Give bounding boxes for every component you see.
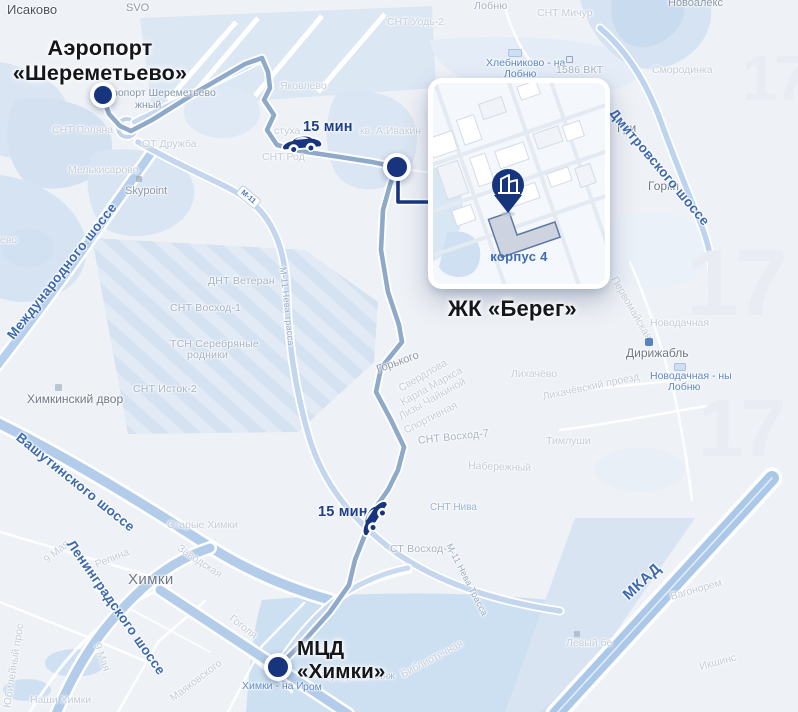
map-label-lobnya: Лобню <box>474 1 507 13</box>
khlebnikovo-station-badge <box>508 49 522 57</box>
inset-building-label: корпус 4 <box>433 249 605 264</box>
bereg-title: ЖК «Берег» <box>448 297 577 322</box>
map-label-airport-poi: ропорт Шереметьево <box>112 88 216 100</box>
building-pin-icon[interactable] <box>492 169 524 213</box>
map-label-snt-michur: СНТ Мичур <box>537 8 593 20</box>
airport-title: Аэропорт «Шереметьево» <box>0 36 200 86</box>
mcd-title-line2: «Химки» <box>297 660 386 683</box>
levy-bereg-poi-icon <box>574 631 580 637</box>
airport-title-line2: «Шереметьево» <box>0 61 200 86</box>
map-label-snt-uod: СНТ Уодь-2 <box>387 17 444 29</box>
khimkinsky-dvor-poi-icon <box>55 384 62 391</box>
map-label-likhachevo: Лихачёво <box>511 369 557 381</box>
watermark-17: 17 <box>742 46 798 110</box>
map-label-evo: ево <box>0 235 17 247</box>
map-label-melkisarovo: Мелькисарово <box>68 165 138 177</box>
map-label-dnt-veteran: ДНТ Ветеран <box>208 276 275 288</box>
map-label-novoaleks: Новоалекс <box>668 0 723 9</box>
map-label-novodachnaya-st-2: Лобню <box>668 382 700 394</box>
inset-map: корпус 4 <box>433 83 605 284</box>
skypoint-poi-icon <box>136 176 142 182</box>
watermark-17: 17 <box>698 388 783 470</box>
map-label-khimki-city: Химки <box>128 572 174 589</box>
inset-map-card[interactable]: корпус 4 <box>428 78 610 289</box>
map-label-nashi-khimki: Наши Химки <box>30 695 91 707</box>
map-label-snt-polyana: СНТ Поляна <box>52 125 113 137</box>
map-label-isakovo: Исаково <box>7 3 57 18</box>
map-label-snt-istok2: СНТ Исток-2 <box>133 384 197 396</box>
watermark-17: 17 <box>686 236 785 330</box>
map-label-smorodinka: Смородинка <box>652 65 713 77</box>
airport-title-line1: Аэропорт <box>0 36 200 61</box>
map-label-khimkinsky-dvor: Химкинский двор <box>27 393 123 406</box>
map-label-naberezhny: Набережный <box>468 461 531 475</box>
dirizhabl-poi-icon <box>645 338 653 346</box>
mcd-khimki-title: МЦД «Химки» <box>297 637 386 683</box>
map-label-ot-druzhba: ОТ Дружба <box>142 139 196 151</box>
map-label-skypoint: Skypoint <box>125 185 167 197</box>
car-icon <box>278 129 326 162</box>
map-label-kv-ivakin: кв. А.Ивакин <box>360 126 421 138</box>
map-label-snt-niva: СНТ Нива <box>430 502 477 513</box>
mcd-title-line1: МЦД <box>297 637 386 660</box>
map-label-svo: SVO <box>126 2 149 14</box>
khimki-route-marker[interactable] <box>264 653 292 681</box>
map-label-yakovlevo: Яковлево <box>280 81 327 93</box>
novodachnaya-station-badge <box>674 363 686 371</box>
map-label-levy-bereg: Левый бе <box>566 638 612 650</box>
map-canvas[interactable]: 17 17 17 Исаково SVO Лобню СНТ Мичур Нов… <box>0 0 798 712</box>
map-label-tsn-2: родники <box>187 350 228 362</box>
map-label-snt-voskhod1: СНТ Восход-1 <box>170 303 241 315</box>
map-label-airport-poi-2: жный <box>135 100 161 112</box>
vkt-poi-icon <box>566 56 573 63</box>
map-label-starye-khimki: Старые Химки <box>167 520 238 532</box>
map-label-dirizhabl: Дирижабль <box>626 347 689 360</box>
map-label-khimki-station-2: ром <box>303 682 322 694</box>
map-label-vkt: 1586 ВКТ <box>556 65 603 77</box>
map-label-novodachnaya: Новодачная <box>650 318 709 330</box>
map-label-khimki-station: Химки - на И <box>242 681 304 693</box>
bereg-route-marker[interactable] <box>383 153 411 181</box>
map-label-timlushi: Тимлуши <box>546 436 591 448</box>
